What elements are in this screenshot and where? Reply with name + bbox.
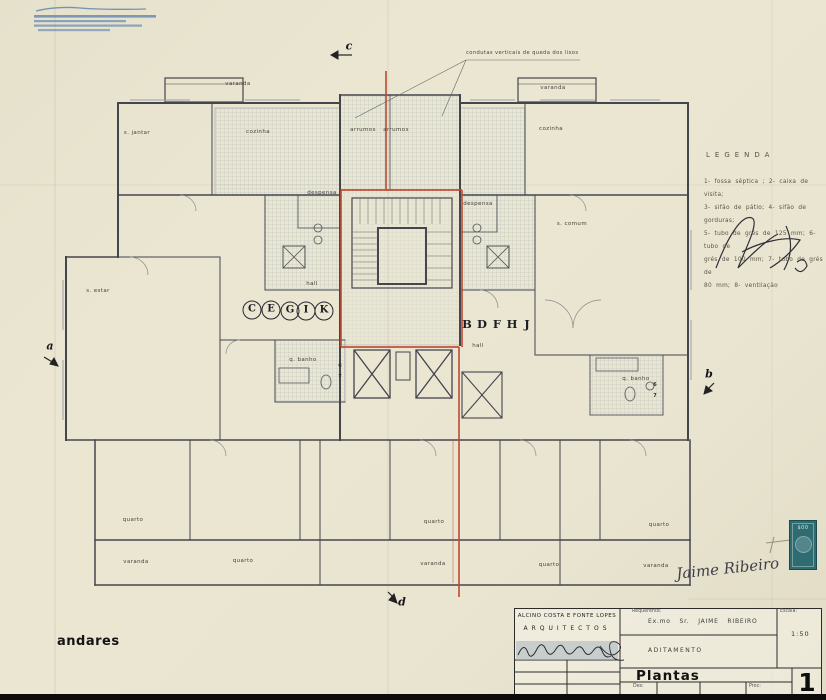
legend: LEGENDA 1- fossa séptica ; 2- caixa de v… [704,149,824,293]
room-label: cozinha [539,126,563,132]
firm-role: ARQUITECTOS [515,625,619,632]
sheet-caption: andares [57,634,120,649]
unit-letter: J [524,317,529,331]
ref-number: 6 [338,363,341,369]
unit-letter-circle: E [262,301,281,320]
ref-number: 7 [653,393,656,399]
scale-value: 1:50 [791,630,810,638]
pencil-marks [766,537,790,553]
legend-title: LEGENDA [706,149,824,162]
legend-line: 80 mm; 8- ventilação [704,280,824,293]
proc-label: Proc: [749,684,761,689]
client-label: Requerente: [632,609,661,614]
room-label: despensa [463,201,493,207]
drawing-title: Plantas [636,668,700,684]
client-name: Ex.mo Sr. JAIME RIBEIRO [648,618,758,625]
room-label: arrumos [383,127,409,133]
room-label: varanda [420,561,445,567]
unit-letter-circle: K [315,302,334,321]
des-label: Des: [633,684,644,689]
legend-line: 5- tubo de grés de 125 mm; 6- tubo de [704,228,824,254]
room-label: quarto [649,522,670,528]
room-label: varanda [643,563,668,569]
room-label: s. comum [557,221,587,227]
room-label: cozinha [246,129,270,135]
room-label: s. jantar [124,130,150,136]
section-marker-a: a [46,340,53,353]
room-label: q. banho [289,357,316,363]
unit-letter-circle: C [243,301,262,320]
ref-number: 6 [653,382,656,388]
room-label: arrumos [350,127,376,133]
scale-label: Escala: [780,609,797,614]
room-label: varanda [225,81,250,87]
unit-letter: D [477,317,487,331]
section-marker-c: c [346,40,353,53]
room-label: hall [472,343,484,349]
elevator-shafts [354,350,502,418]
section-marker-b: b [705,368,713,381]
unit-letter-circle: I [297,302,316,321]
unit-letter: B [462,317,472,331]
legend-line: 1- fossa séptica ; 2- caixa de visita; [704,176,824,202]
waste-chute-annotation: condutas verticais de queda dos lixos [466,50,578,56]
room-label: quarto [123,517,144,523]
room-label: s. estar [86,288,110,294]
revenue-stamp-value: $00 [793,525,813,531]
sheet-number: 1 [792,668,822,697]
section-marker-d: d [398,596,406,609]
firm-name: ALCINO COSTA E FONTE LOPES [515,613,619,619]
room-label: q. banho [622,376,649,382]
legend-line: 3- sifão de pátio; 4- sifão de gorduras; [704,202,824,228]
room-label: varanda [123,559,148,565]
floor-plan-drawing [0,0,826,700]
drawing-sheet: condutas verticais de queda dos lixos va… [0,0,826,700]
municipal-stamp [34,7,156,31]
room-label: despensa [307,190,337,196]
unit-letter: F [493,317,501,331]
room-label: varanda [540,85,565,91]
addendum-label: ADITAMENTO [648,647,703,654]
photo-edge [0,694,826,700]
room-label: quarto [539,562,560,568]
legend-line: grés de 100 mm; 7- tubo de grés de [704,254,824,280]
room-label: quarto [233,558,254,564]
ref-number: 7 [338,374,341,380]
unit-letter: H [507,317,518,331]
room-label: quarto [424,519,445,525]
room-label: hall [306,281,318,287]
